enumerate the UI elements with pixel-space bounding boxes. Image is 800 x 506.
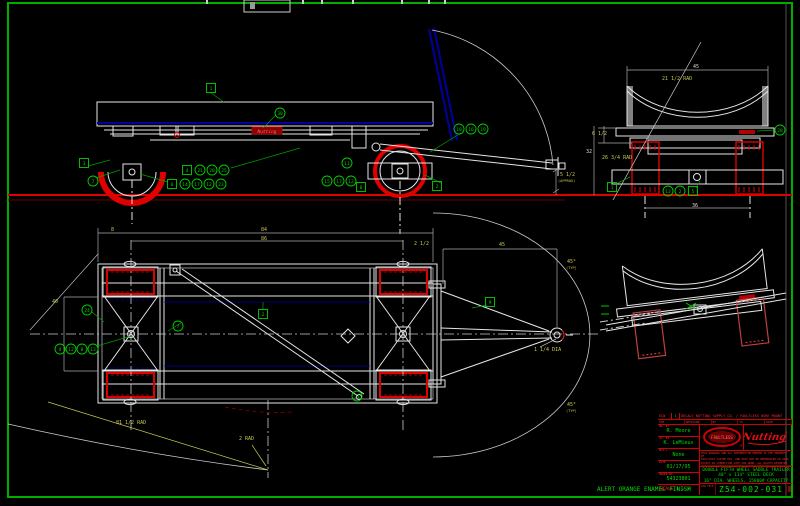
balloon-19: 19 <box>478 124 488 134</box>
balloon-number: 6 <box>171 182 174 188</box>
end-view-tilted <box>600 248 786 361</box>
balloon-8: 8 <box>77 344 87 354</box>
ecn-description: DECALS NUTTING SUPPLY CO. / FAULTLESS WI… <box>680 413 792 419</box>
radius-leader <box>613 42 701 200</box>
balloon-number: 3 <box>83 161 86 167</box>
title-block-fields: DR. BY R. Moore CH. BY K. LeMieux MAT'L … <box>658 425 700 495</box>
balloon-30: 30 <box>275 108 285 118</box>
balloon-number: 2 <box>436 184 439 190</box>
drawbar-swing-arc <box>432 30 553 165</box>
cursor-cell <box>786 484 792 495</box>
balloon-16: 16 <box>466 124 476 134</box>
side-elevation-view: Nutting <box>97 28 565 234</box>
field-value: 54323801 <box>658 476 699 482</box>
balloon-number: 13 <box>665 189 671 195</box>
svg-text:Nutting: Nutting <box>257 129 277 135</box>
balloon-2: 2 <box>259 310 268 319</box>
title-block: ECN 1 DECALS NUTTING SUPPLY CO. / FAULTL… <box>658 413 792 497</box>
saddle <box>627 86 768 126</box>
balloon-11: 11 <box>342 158 352 168</box>
balloon-number: 17 <box>336 179 342 185</box>
balloon-number: 4 <box>186 168 189 174</box>
balloon-1: 1 <box>207 84 216 93</box>
dimension-text: 45° <box>567 259 576 265</box>
drawing-number-row: CAD FILE Z54-002-031 <box>700 484 792 495</box>
dimension-text: 86 <box>261 236 267 242</box>
dimension-text: 8 <box>111 227 114 233</box>
balloon-4: 4 <box>55 344 65 354</box>
balloon-6: 6 <box>168 180 177 189</box>
field-value: 01/17/95 <box>658 464 699 470</box>
rev-header-date: DATE <box>765 420 792 424</box>
balloon-number: 2 <box>262 312 265 318</box>
balloon-number: 23 <box>218 182 224 188</box>
cad-screen: Nutting <box>0 0 800 506</box>
plan-centerlines <box>30 240 600 478</box>
dimension-text: 6 1/2 <box>592 131 607 137</box>
rev-header-revision: REVISION <box>685 420 712 424</box>
balloon-leaders <box>88 93 775 346</box>
dimension-text: 45° <box>567 402 576 408</box>
plan-dim-lines <box>64 228 557 371</box>
field-value: R. Moore <box>658 428 699 434</box>
balloon-number: 1 <box>210 86 213 92</box>
balloon-number: 12 <box>68 347 74 353</box>
ecn-label: ECN <box>658 413 672 419</box>
balloon-17: 17 <box>334 176 344 186</box>
radius-leaders <box>48 402 268 470</box>
balloon-23: 23 <box>216 179 226 189</box>
dwg-number-label: CAD FILE <box>700 484 716 495</box>
balloon-4: 4 <box>183 166 192 175</box>
swing-arcs <box>8 213 590 470</box>
balloon-14: 14 <box>180 179 190 189</box>
scale-label: SCALE <box>660 487 674 492</box>
nutting-decal-end <box>739 130 755 134</box>
balloon-21: 21 <box>195 165 205 175</box>
drawing-title: DOUBLE FIFTH WHEEL SADDLE TRAILER 40" x … <box>700 467 792 484</box>
frame-diamond <box>341 329 355 343</box>
dimension-text: 81 1/2 RAD <box>116 420 146 426</box>
balloon-8: 8 <box>357 183 366 192</box>
fine-print-line: EXCEPT IN CONNECTION WITH OUR WORK. ALL … <box>701 462 791 465</box>
stowed-brace <box>170 265 364 400</box>
dimension-text: 32 <box>586 149 592 155</box>
balloon-number: 7 <box>92 179 95 185</box>
field-scale: SCALE 1 = 3 <box>658 485 699 495</box>
balloon-15: 15 <box>322 176 332 186</box>
dimension-text: (TYP) <box>566 409 577 413</box>
field-value: None <box>658 452 699 458</box>
balloon-number: 5 <box>692 189 695 195</box>
balloon-10: 10 <box>454 124 464 134</box>
balloon-number: 7 <box>177 324 180 330</box>
balloon-number: 31 <box>354 394 360 400</box>
dimension-text: 45 <box>499 242 505 248</box>
balloon-20: 20 <box>207 165 217 175</box>
svg-text:®: ® <box>740 443 743 448</box>
balloon-number: 24 <box>84 308 90 314</box>
balloon-number: 8 <box>360 185 363 191</box>
balloon-12: 12 <box>66 344 76 354</box>
balloon-number: 10 <box>456 127 462 133</box>
dimension-text: (TYP) <box>566 266 577 270</box>
balloon-13: 13 <box>88 344 98 354</box>
dimension-text: 45 <box>693 64 699 70</box>
rev-header-by: BY <box>712 420 739 424</box>
dwg-number: Z54-002-031 <box>716 484 786 495</box>
rear-wheel <box>368 146 432 234</box>
balloon-number: 21 <box>197 168 203 174</box>
svg-text:®: ® <box>785 430 788 435</box>
dimension-text: 36 <box>692 203 698 209</box>
balloon-number: 14 <box>182 182 188 188</box>
balloon-number: 19 <box>480 127 486 133</box>
dimension-text: 40 <box>52 299 58 305</box>
balloon-number: 17 <box>194 182 200 188</box>
dimension-text: 26 3/4 RAD <box>602 155 632 161</box>
balloon-31: 31 <box>352 391 362 401</box>
balloon-24: 24 <box>82 305 92 315</box>
balloon-number: 2 <box>679 189 682 195</box>
ecn-number: 1 <box>672 413 680 419</box>
balloon-3: 3 <box>80 159 89 168</box>
dimension-text: 1 1/4 DIA <box>534 347 561 353</box>
nutting-logo: Nutting ® <box>744 425 792 450</box>
svg-text:Nutting: Nutting <box>744 431 788 443</box>
balloon-number: 8 <box>81 347 84 353</box>
balloon-number: 12 <box>206 182 212 188</box>
dimension-text: 21 1/2 RAD <box>662 76 692 82</box>
balloon-number: 1 <box>611 185 614 191</box>
balloon-number: 15 <box>324 179 330 185</box>
balloon-12: 12 <box>204 179 214 189</box>
balloon-25: 25 <box>219 165 229 175</box>
screen-artifacts <box>206 0 446 12</box>
balloon-7: 7 <box>88 176 98 186</box>
balloon-number: 30 <box>277 111 283 117</box>
balloon-13: 13 <box>663 186 673 196</box>
balloon-28: 28 <box>775 125 785 135</box>
balloon-number: 13 <box>90 347 96 353</box>
dimension-text: 2 RAD <box>239 436 254 442</box>
cursor-block <box>788 486 791 492</box>
balloon-number: 25 <box>221 168 227 174</box>
dimension-text: 84 <box>261 227 267 233</box>
faultless-logo: FAULTLESS ® <box>700 425 744 450</box>
ecn-row: ECN 1 DECALS NUTTING SUPPLY CO. / FAULTL… <box>658 413 792 420</box>
field-order-no: ORDER NO. 54323801 <box>658 473 699 485</box>
balloon-number: 16 <box>468 127 474 133</box>
rev-header-ck: CK <box>738 420 765 424</box>
scale-value: 1 = 3 <box>676 487 690 492</box>
proprietary-note: THIS DRAWING AND ALL INFORMATION HEREON … <box>700 451 792 467</box>
svg-text:FAULTLESS: FAULTLESS <box>711 435 733 440</box>
nutting-decal-side: Nutting <box>252 127 282 135</box>
dimension-text: (APPROX) <box>558 179 575 183</box>
balloon-number: 9 <box>489 300 492 306</box>
balloon-2: 2 <box>675 186 685 196</box>
balloon-number: 4 <box>59 347 62 353</box>
balloon-number: 28 <box>777 128 783 134</box>
balloon-7: 7 <box>173 321 183 331</box>
balloon-number: 11 <box>344 161 350 167</box>
tilted-tongue <box>600 293 786 331</box>
balloon-number: 12 <box>348 179 354 185</box>
dimension-text: 5 1/2 <box>560 172 575 178</box>
dimension-text: 2 1/2 <box>414 241 429 247</box>
balloon-17: 17 <box>192 179 202 189</box>
balloon-number: 20 <box>209 168 215 174</box>
field-value: K. LeMieux <box>658 440 699 446</box>
balloon-12: 12 <box>346 176 356 186</box>
